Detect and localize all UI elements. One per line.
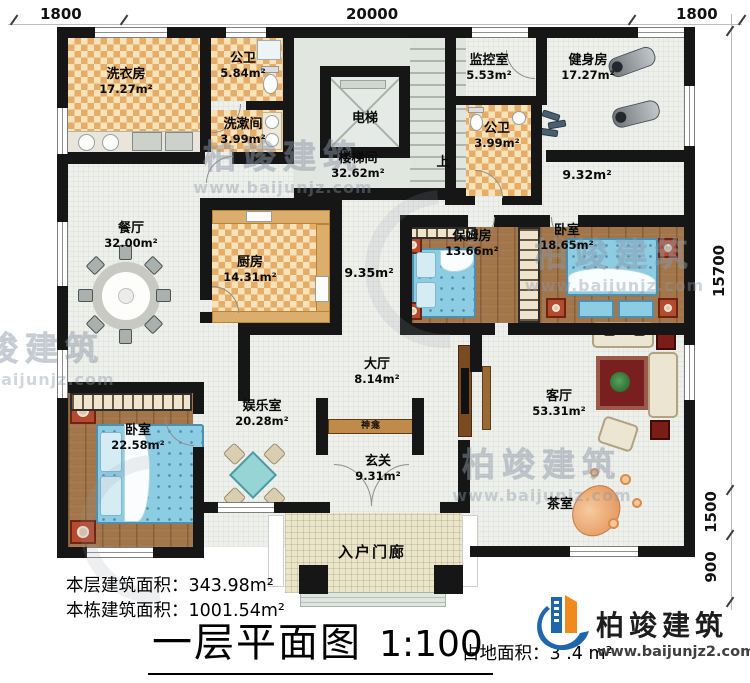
wall-kitchen-left-a xyxy=(200,210,212,300)
room-name: 卧室 xyxy=(540,224,593,239)
room-name: 神龛 xyxy=(361,421,381,431)
room-label-entertainment: 娱乐室 20.28m² xyxy=(235,400,288,428)
nightstand xyxy=(546,298,566,318)
window xyxy=(472,27,528,38)
room-area: 22.58m² xyxy=(111,439,164,452)
dim-line-right xyxy=(731,14,732,610)
room-area: 20.28m² xyxy=(235,415,288,428)
room-area: 14.31m² xyxy=(223,271,276,284)
room-label-corridor: 9.35m² xyxy=(344,266,393,280)
wall-laundry-bottom xyxy=(68,152,205,164)
room-label-bath-right: 公卫 3.99m² xyxy=(474,122,519,150)
dim-right-bottom: 900 xyxy=(702,550,720,584)
tea-stool xyxy=(620,474,631,485)
stairs-up-label: 上 xyxy=(436,156,449,171)
room-label-dining: 餐厅 32.00m² xyxy=(104,222,157,250)
wall-bedroom-left-right-a xyxy=(193,392,204,414)
room-name: 洗衣房 xyxy=(99,68,152,83)
toilet-tank xyxy=(468,107,484,113)
room-label-washroom: 洗漱间 3.99m² xyxy=(220,118,265,146)
room-label-stairwell: 楼梯间 32.62m² xyxy=(331,152,384,180)
brand-name: 柏竣建筑 xyxy=(596,604,728,644)
dim-right-mid: 1500 xyxy=(702,490,720,534)
wall-kitchen-top xyxy=(200,198,342,210)
room-label-tea: 茶室 xyxy=(547,498,573,513)
room-label-kitchen: 厨房 14.31m² xyxy=(223,256,276,284)
room-label-gym: 健身房 17.27m² xyxy=(561,54,614,82)
room-label-monitor: 监控室 5.53m² xyxy=(466,54,511,82)
bed-bench xyxy=(618,300,654,318)
window xyxy=(570,546,638,557)
floor-plan-page: 1800 20000 1800 15700 1500 900 xyxy=(0,0,750,683)
laundry-machine xyxy=(132,132,162,151)
plan-scale: 1:100 xyxy=(379,624,483,665)
kitchen-sink xyxy=(246,211,272,222)
room-label-foyer: 玄关 9.31m² xyxy=(355,455,400,483)
room-label-living: 客厅 53.31m² xyxy=(532,390,585,418)
plant-icon xyxy=(610,372,630,392)
room-label-shrine: 神龛 xyxy=(361,421,381,431)
chair-icon xyxy=(156,289,171,302)
room-name: 公卫 xyxy=(220,52,265,67)
wall-outer-left xyxy=(57,27,68,558)
dim-right-main: 15700 xyxy=(710,236,728,306)
laundry-machine xyxy=(165,132,193,151)
room-area: 18.65m² xyxy=(540,239,593,252)
elevator-door xyxy=(340,80,386,89)
wall-shrine-left xyxy=(316,398,328,455)
washer-icon xyxy=(102,134,119,151)
room-name: 保姆房 xyxy=(445,230,498,245)
room-name: 茶室 xyxy=(547,498,573,513)
wall-gym-bottom xyxy=(546,150,684,162)
wardrobe-bedroom-left xyxy=(70,393,192,411)
room-name: 厨房 xyxy=(223,256,276,271)
window xyxy=(684,345,695,400)
dim-tick xyxy=(738,14,746,25)
wall-shrine-right xyxy=(412,398,424,455)
window xyxy=(57,350,68,398)
chair-icon xyxy=(119,329,132,344)
room-name: 健身房 xyxy=(561,54,614,69)
room-label-bedroom-right: 卧室 18.65m² xyxy=(540,224,593,252)
tea-stool xyxy=(632,498,642,508)
wall-hall-stub xyxy=(238,335,250,401)
window xyxy=(684,86,695,146)
room-area: 32.00m² xyxy=(104,237,157,250)
sink-icon xyxy=(265,133,279,147)
tea-stool xyxy=(590,468,599,477)
room-name: 餐厅 xyxy=(104,222,157,237)
room-area: 9.31m² xyxy=(355,470,400,483)
plan-title: 一层平面图 1:100 xyxy=(148,610,493,675)
chair-icon xyxy=(78,289,93,302)
room-label-bath-top: 公卫 5.84m² xyxy=(220,52,265,80)
room-label-porch: 入户门廊 xyxy=(338,544,406,561)
brand-logo-icon xyxy=(531,592,593,662)
wall-bedrooms-top-c xyxy=(578,215,684,227)
nightstand xyxy=(658,238,678,258)
sofa-chaise xyxy=(648,352,678,418)
room-label-nanny: 保姆房 13.66m² xyxy=(445,230,498,258)
room-area: 3.99m² xyxy=(220,133,265,146)
room-name: 卧室 xyxy=(111,424,164,439)
room-name: 上 xyxy=(436,156,449,171)
side-table xyxy=(650,420,670,440)
room-name: 监控室 xyxy=(466,54,511,69)
dim-tick xyxy=(726,25,734,36)
room-name: 玄关 xyxy=(355,455,400,470)
dim-top-center: 20000 xyxy=(346,5,398,23)
wall-bedroom-right-bottom xyxy=(508,323,684,335)
wall-monitor-left xyxy=(445,38,456,96)
wall-kitchen-right xyxy=(330,210,342,323)
porch-column-right xyxy=(434,565,463,594)
room-area: 53.31m² xyxy=(532,405,585,418)
room-area: 8.14m² xyxy=(354,373,399,386)
wall-monitor-gym xyxy=(536,38,547,105)
washer-icon xyxy=(78,134,95,151)
wall-bath2-right xyxy=(531,105,542,205)
room-area: 3.99m² xyxy=(474,137,519,150)
room-label-hall: 大厅 8.14m² xyxy=(354,358,399,386)
room-name: 客厅 xyxy=(532,390,585,405)
room-name: 大厅 xyxy=(354,358,399,373)
dim-tick xyxy=(726,529,734,540)
window xyxy=(95,27,167,38)
room-label-laundry: 洗衣房 17.27m² xyxy=(99,68,152,96)
window xyxy=(638,27,684,38)
brand-url: www.baijunjz2.com xyxy=(597,644,750,660)
stat-value: 343.98m² xyxy=(189,576,274,596)
dim-top-left: 1800 xyxy=(40,5,82,23)
bed-bench xyxy=(578,300,614,318)
tea-stool xyxy=(608,518,619,529)
porch-column-left xyxy=(299,565,328,594)
room-area: 17.27m² xyxy=(99,83,152,96)
dim-line-top xyxy=(8,24,742,25)
window xyxy=(57,222,68,286)
dining-table-center xyxy=(118,288,134,304)
room-area: 32.62m² xyxy=(331,167,384,180)
tv-icon xyxy=(461,368,469,414)
wall-foyer-tea xyxy=(458,440,470,513)
wall-kitchen-bottom xyxy=(238,323,342,335)
room-name: 电梯 xyxy=(352,112,378,127)
wall-dining-bottom xyxy=(57,382,204,393)
room-area: 5.53m² xyxy=(466,69,511,82)
window xyxy=(57,108,68,154)
room-name: 洗漱间 xyxy=(220,118,265,133)
room-name: 入户门廊 xyxy=(338,544,406,561)
room-name: 楼梯间 xyxy=(331,152,384,167)
room-label-elevator: 电梯 xyxy=(352,112,378,127)
dim-top-right: 1800 xyxy=(676,5,718,23)
room-area: 9.32m² xyxy=(562,168,611,182)
porch-steps xyxy=(300,592,446,607)
wall-bath-stair xyxy=(283,38,294,162)
room-label-open-area: 9.32m² xyxy=(562,168,611,182)
brand-logo-svg xyxy=(531,592,593,662)
wall-monitor-bottom xyxy=(445,96,546,105)
room-label-bedroom-left: 卧室 22.58m² xyxy=(111,424,164,452)
room-area: 17.27m² xyxy=(561,69,614,82)
room-area: 13.66m² xyxy=(445,245,498,258)
nightstand xyxy=(658,298,678,318)
wall-washroom-bottom xyxy=(232,152,294,164)
room-name: 娱乐室 xyxy=(235,400,288,415)
stat-label: 本层建筑面积： xyxy=(66,576,189,596)
room-area: 5.84m² xyxy=(220,67,265,80)
sink-icon xyxy=(265,115,279,129)
stat-floor-area: 本层建筑面积：343.98m² xyxy=(66,572,274,597)
kitchen-counter-right xyxy=(316,224,330,323)
window xyxy=(226,27,266,38)
plan-title-text: 一层平面图 xyxy=(152,620,362,666)
room-area: 9.35m² xyxy=(344,266,393,280)
stove-icon xyxy=(315,276,329,302)
door-leaf xyxy=(482,366,491,430)
dim-tick xyxy=(726,484,734,495)
room-name: 公卫 xyxy=(474,122,519,137)
wall-laundry-bath xyxy=(200,38,211,152)
wall-bath2-bottom-b xyxy=(502,196,542,205)
wall-kitchen-left-b xyxy=(200,312,212,323)
